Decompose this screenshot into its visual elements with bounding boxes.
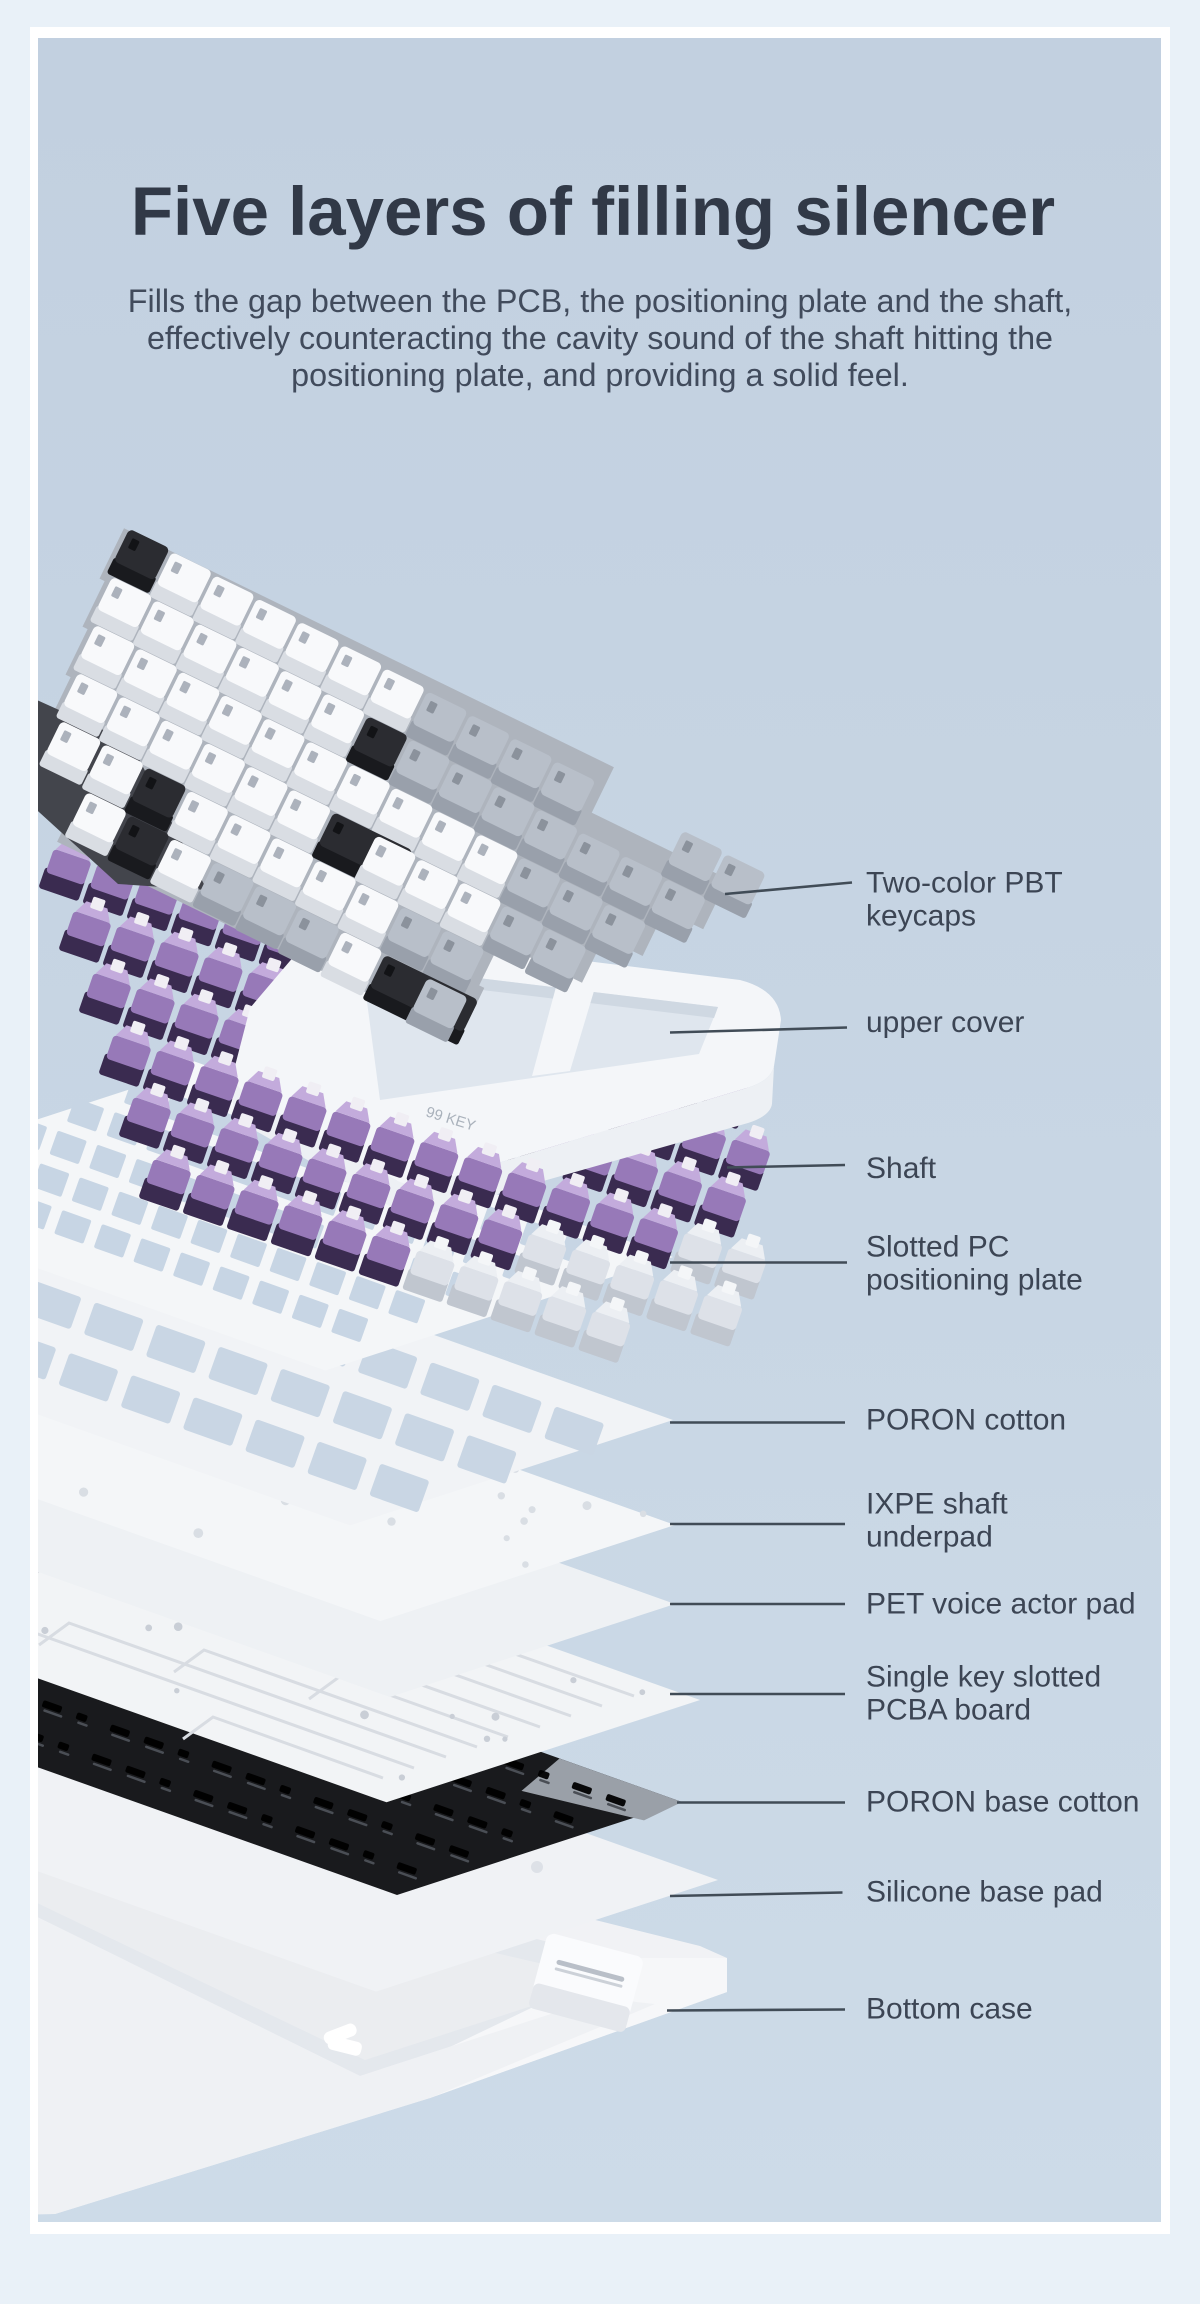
svg-text:IXPE shaftunderpad: IXPE shaftunderpad [866, 1488, 1008, 1554]
svg-text:Bottom case: Bottom case [866, 1993, 1033, 2026]
svg-text:Slotted PCpositioning plate: Slotted PCpositioning plate [866, 1231, 1083, 1297]
svg-text:PORON cotton: PORON cotton [866, 1404, 1066, 1437]
svg-text:Two-color PBTkeycaps: Two-color PBTkeycaps [866, 867, 1063, 933]
svg-text:Single key slottedPCBA board: Single key slottedPCBA board [866, 1661, 1101, 1727]
svg-text:PET voice actor pad: PET voice actor pad [866, 1588, 1136, 1621]
svg-text:Silicone base pad: Silicone base pad [866, 1876, 1103, 1909]
svg-text:upper cover: upper cover [866, 1006, 1024, 1039]
svg-text:Shaft: Shaft [866, 1152, 937, 1185]
svg-text:PORON base cotton: PORON base cotton [866, 1786, 1139, 1819]
